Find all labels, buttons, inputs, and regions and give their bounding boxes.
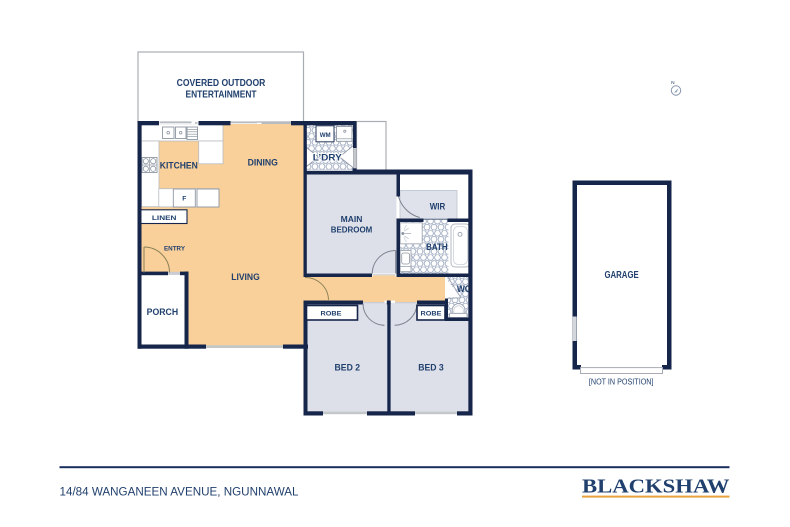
svg-text:GARAGE: GARAGE xyxy=(604,270,639,281)
svg-text:BLACKSHAW: BLACKSHAW xyxy=(582,476,730,497)
svg-text:BED 3: BED 3 xyxy=(418,363,444,373)
svg-text:L’DRY: L’DRY xyxy=(313,153,343,164)
svg-text:LIVING: LIVING xyxy=(231,272,260,282)
svg-text:ROBE: ROBE xyxy=(421,310,443,317)
svg-text:BEDROOM: BEDROOM xyxy=(331,224,373,234)
svg-text:KITCHEN: KITCHEN xyxy=(160,161,198,171)
svg-text:WM: WM xyxy=(320,132,331,139)
svg-text:BATH: BATH xyxy=(426,242,448,252)
svg-text:COVERED OUTDOOR: COVERED OUTDOOR xyxy=(177,78,266,89)
svg-text:DINING: DINING xyxy=(248,158,278,168)
svg-text:14/84 WANGANEEN AVENUE, NGUNNA: 14/84 WANGANEEN AVENUE, NGUNNAWAL xyxy=(60,486,300,498)
svg-text:LINEN: LINEN xyxy=(152,215,177,222)
svg-text:BED 2: BED 2 xyxy=(335,363,361,373)
svg-text:ENTRY: ENTRY xyxy=(164,246,186,253)
svg-text:F: F xyxy=(182,196,186,203)
svg-text:N: N xyxy=(671,80,675,86)
svg-text:WIR: WIR xyxy=(430,202,446,212)
svg-text:ENTERTAINMENT: ENTERTAINMENT xyxy=(186,89,258,100)
svg-text:[NOT IN POSITION]: [NOT IN POSITION] xyxy=(589,378,654,387)
svg-text:MAIN: MAIN xyxy=(341,214,363,224)
svg-text:PORCH: PORCH xyxy=(147,307,179,318)
svg-text:ROBE: ROBE xyxy=(321,310,343,317)
